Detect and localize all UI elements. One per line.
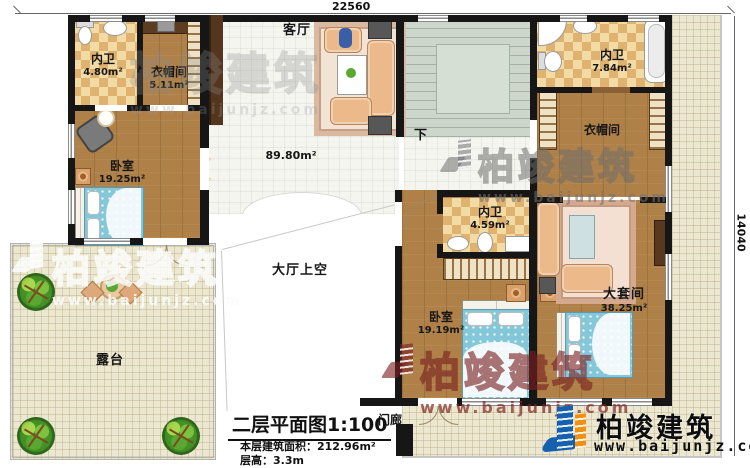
sink-icon bbox=[103, 20, 127, 36]
pillow-icon bbox=[87, 191, 100, 215]
window bbox=[68, 190, 75, 224]
room-area-bath1: 4.80m² bbox=[83, 67, 122, 78]
toilet-icon bbox=[78, 26, 92, 45]
wardrobe-rack bbox=[539, 90, 557, 150]
room-area-bedroom2: 19.19m² bbox=[418, 325, 464, 336]
blanket bbox=[592, 313, 630, 375]
wall bbox=[537, 197, 563, 203]
door-opening bbox=[143, 238, 187, 245]
door-opening bbox=[95, 105, 127, 111]
wall bbox=[530, 15, 537, 120]
wall-pillar bbox=[396, 424, 413, 456]
window bbox=[68, 124, 75, 158]
wardrobe-rack bbox=[443, 258, 531, 280]
company-logo-icon bbox=[545, 404, 591, 454]
room-area-cloak1: 5.11m² bbox=[149, 80, 188, 91]
logo-tower-orange bbox=[575, 413, 586, 448]
room-label-cloak1: 衣帽间 bbox=[151, 66, 187, 79]
door-opening bbox=[150, 105, 188, 111]
sofa-icon bbox=[537, 202, 560, 276]
room-area-bedroom1: 19.25m² bbox=[99, 174, 145, 185]
window bbox=[665, 166, 672, 212]
window bbox=[462, 398, 520, 406]
room-area-living: 89.80m² bbox=[265, 150, 316, 162]
plant-icon bbox=[346, 68, 356, 78]
room-label-bath2: 内卫 bbox=[600, 49, 624, 62]
room-area-suite: 38.25m² bbox=[601, 303, 647, 314]
pillow-icon bbox=[498, 312, 524, 326]
tree-icon bbox=[17, 417, 55, 455]
armchair-icon bbox=[330, 97, 372, 125]
dimension-label-right: 14040 bbox=[735, 213, 748, 251]
room-label-living: 客厅 bbox=[283, 24, 311, 38]
sink-icon bbox=[447, 236, 469, 251]
ceiling-light-icon bbox=[97, 109, 115, 127]
stair-hall-floor bbox=[404, 137, 530, 190]
room-area-bath2: 7.84m² bbox=[592, 63, 631, 74]
plant-icon bbox=[106, 280, 118, 292]
door-opening bbox=[395, 202, 402, 246]
room-floor-hall-void bbox=[209, 214, 397, 412]
blanket bbox=[106, 188, 141, 243]
room-area-bath3: 4.59m² bbox=[470, 220, 509, 231]
window bbox=[612, 398, 652, 406]
wall bbox=[437, 190, 535, 197]
wall bbox=[640, 197, 666, 203]
room-label-cloak2: 衣帽间 bbox=[584, 124, 620, 137]
wall bbox=[137, 15, 143, 110]
blanket bbox=[463, 342, 527, 397]
window bbox=[665, 254, 672, 300]
dimension-line-top bbox=[15, 13, 731, 14]
side-table-icon bbox=[368, 116, 392, 135]
door-opening bbox=[200, 148, 209, 190]
room-label-hall-void: 大厅上空 bbox=[272, 264, 328, 278]
door-leaf bbox=[592, 87, 630, 93]
room-label-suite: 大套间 bbox=[603, 288, 645, 302]
room-label-bedroom1: 卧室 bbox=[110, 160, 134, 173]
room-label-terrace: 露台 bbox=[96, 354, 124, 368]
pillow-icon bbox=[568, 316, 581, 342]
room-label-bedroom2: 卧室 bbox=[429, 311, 453, 324]
wall bbox=[437, 190, 443, 214]
right-terrace-floor bbox=[672, 15, 722, 458]
pillow-icon bbox=[568, 344, 581, 370]
door-opening bbox=[418, 398, 457, 406]
side-table-icon bbox=[539, 277, 556, 294]
wall bbox=[529, 197, 537, 398]
company-url: www.baijunjz.com bbox=[594, 437, 750, 455]
floor-plan-canvas: 22560 14040 bbox=[0, 0, 750, 468]
window bbox=[628, 15, 659, 22]
plan-height-line: 层高：3.3m bbox=[240, 452, 304, 468]
wall-feature bbox=[209, 15, 223, 125]
window bbox=[418, 15, 448, 22]
side-table-icon bbox=[368, 20, 392, 39]
room-label-bath1: 内卫 bbox=[91, 53, 115, 66]
nightstand-icon bbox=[75, 168, 91, 185]
room-label-bath3: 内卫 bbox=[478, 206, 502, 219]
logo-tower-blue bbox=[557, 405, 573, 449]
wall bbox=[437, 252, 535, 258]
wall bbox=[200, 15, 209, 245]
toilet-icon bbox=[477, 232, 493, 253]
tree-icon bbox=[17, 273, 55, 311]
cabinet-icon bbox=[505, 236, 531, 252]
nightstand-icon bbox=[506, 284, 526, 302]
plan-title: 二层平面图1:100 bbox=[228, 410, 391, 441]
bathtub-icon bbox=[648, 24, 665, 78]
window bbox=[84, 238, 130, 245]
toilet-icon bbox=[544, 51, 562, 72]
coffee-table-icon bbox=[569, 215, 595, 259]
wall bbox=[396, 15, 404, 137]
tree-icon bbox=[162, 417, 200, 455]
dimension-label-top: 22560 bbox=[332, 0, 370, 13]
pillow-icon bbox=[467, 312, 493, 326]
window bbox=[560, 15, 587, 22]
stairs-down-label: 下 bbox=[414, 129, 428, 143]
person-icon bbox=[339, 28, 352, 48]
window bbox=[90, 15, 122, 22]
stairs-landing bbox=[436, 44, 510, 114]
window bbox=[145, 15, 175, 22]
